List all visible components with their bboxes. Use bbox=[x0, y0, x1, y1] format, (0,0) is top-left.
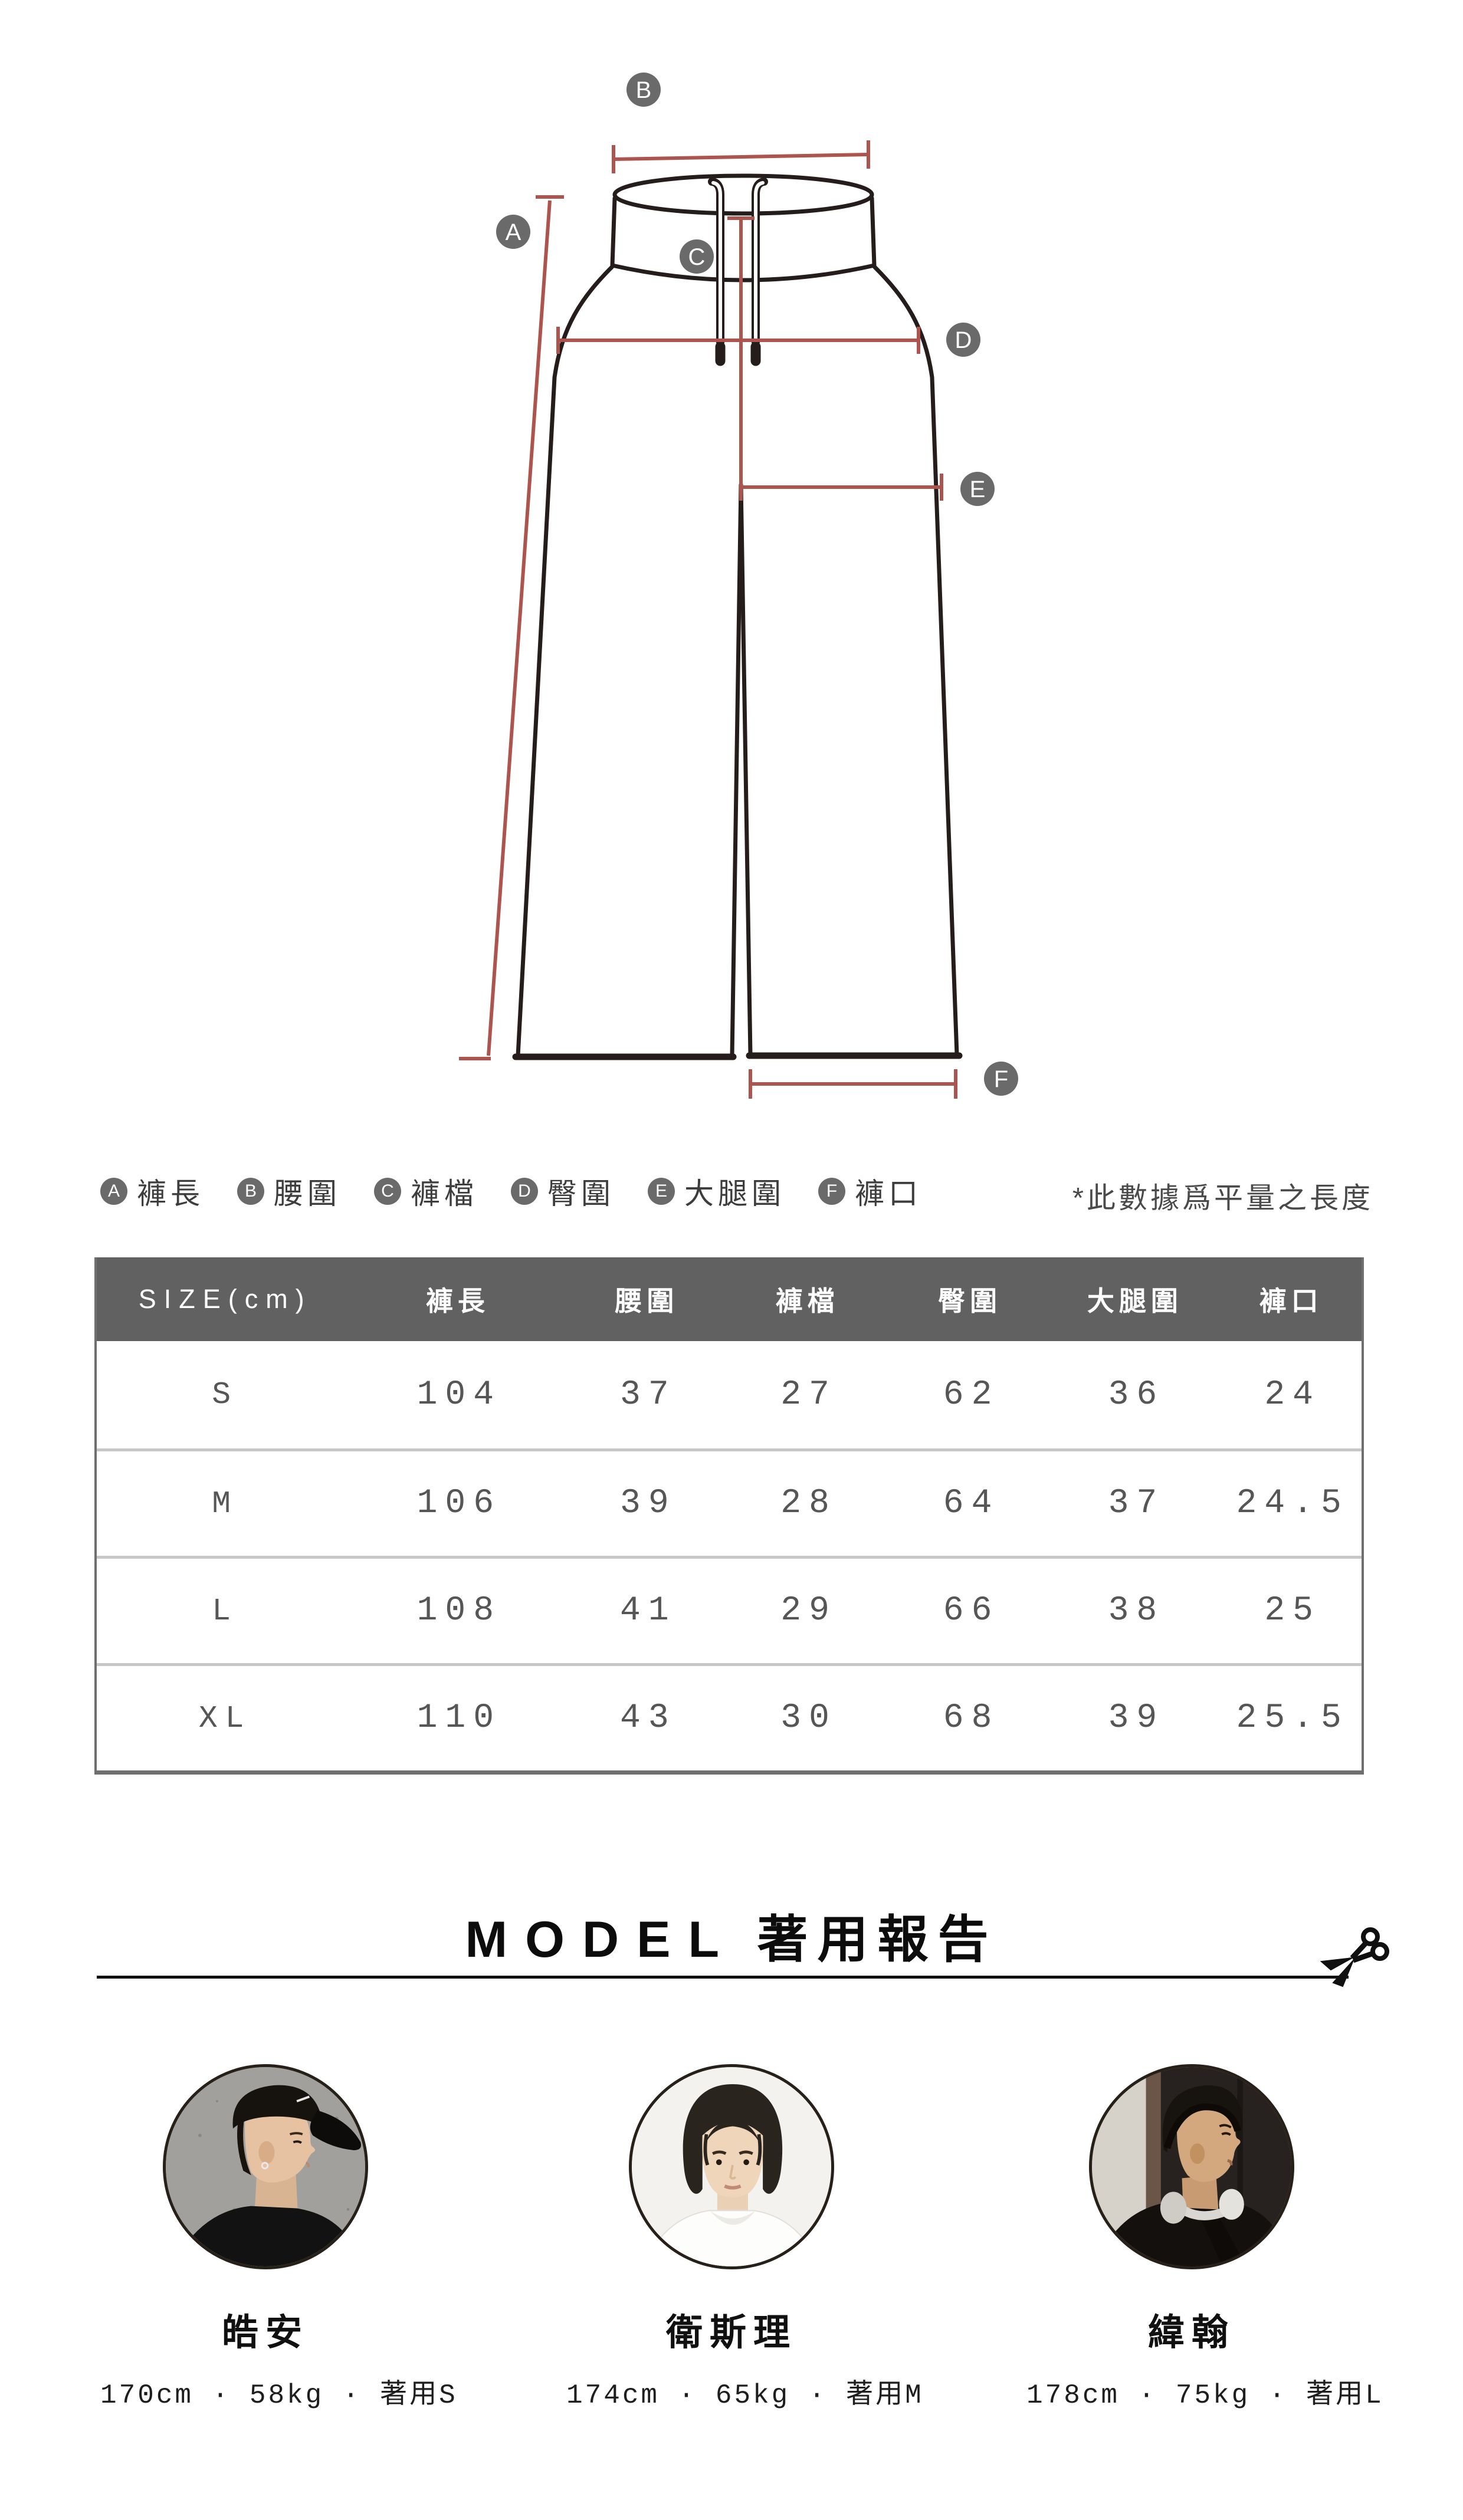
legend-label: 褲口 bbox=[855, 1170, 922, 1213]
value-rise: 29 bbox=[724, 1592, 885, 1630]
value-rise: 28 bbox=[724, 1484, 885, 1523]
legend-label: 大腿圍 bbox=[684, 1170, 785, 1213]
marker-f: F bbox=[984, 1062, 1018, 1096]
flat-measure-note: *此數據爲平量之長度 bbox=[1072, 1175, 1373, 1217]
header-waist: 腰圍 bbox=[565, 1280, 724, 1319]
model-name: 緯翰 bbox=[1026, 2302, 1357, 2355]
value-hip: 62 bbox=[886, 1376, 1049, 1414]
table-row-m: M 106 39 28 64 37 24.5 bbox=[97, 1448, 1362, 1556]
legend-circle-b: B bbox=[237, 1178, 264, 1205]
value-thigh: 38 bbox=[1049, 1592, 1216, 1630]
legend-item-c: C 褲檔 bbox=[374, 1170, 478, 1213]
header-hip: 臀圍 bbox=[886, 1280, 1049, 1319]
measurement-lines bbox=[459, 140, 956, 1099]
size-label: S bbox=[97, 1377, 346, 1412]
svg-text:A: A bbox=[506, 219, 521, 245]
value-length: 108 bbox=[346, 1592, 565, 1630]
value-hem: 25.5 bbox=[1216, 1699, 1362, 1737]
legend-item-d: D 臀圍 bbox=[511, 1170, 615, 1213]
measurement-legend: A 褲長 B 腰圍 C 褲檔 D 臀圍 E 大腿圍 F 褲口 bbox=[100, 1170, 955, 1213]
header-length: 褲長 bbox=[346, 1280, 565, 1319]
legend-circle-d: D bbox=[511, 1178, 538, 1205]
legend-label: 褲長 bbox=[137, 1170, 204, 1213]
legend-label: 臀圍 bbox=[547, 1170, 615, 1213]
legend-label: 褲檔 bbox=[411, 1170, 478, 1213]
value-thigh: 36 bbox=[1049, 1376, 1216, 1414]
value-waist: 43 bbox=[565, 1699, 724, 1737]
value-length: 104 bbox=[346, 1376, 565, 1414]
legend-circle-a: A bbox=[100, 1178, 127, 1205]
model-photo bbox=[1089, 2064, 1294, 2269]
svg-text:F: F bbox=[994, 1066, 1008, 1092]
size-label: M bbox=[97, 1486, 346, 1522]
pants-measurement-diagram: A B C D E F bbox=[0, 0, 1463, 1144]
legend-item-a: A 褲長 bbox=[100, 1170, 204, 1213]
model-info: 170cm · 58kg · 著用S bbox=[100, 2372, 431, 2411]
value-rise: 27 bbox=[724, 1376, 885, 1414]
title-model-en: MODEL bbox=[465, 1911, 737, 1968]
svg-text:B: B bbox=[636, 77, 652, 103]
model-name: 皓安 bbox=[100, 2302, 431, 2355]
legend-circle-f: F bbox=[818, 1178, 845, 1205]
legend-item-b: B 腰圍 bbox=[237, 1170, 341, 1213]
marker-b: B bbox=[626, 73, 661, 107]
header-hem: 褲口 bbox=[1216, 1280, 1362, 1319]
model-card: 緯翰 178cm · 75kg · 著用L bbox=[1026, 2064, 1357, 2411]
size-table: SIZE(cm) 褲長 腰圍 褲檔 臀圍 大腿圍 褲口 S 104 37 27 … bbox=[94, 1257, 1364, 1775]
svg-text:C: C bbox=[688, 244, 706, 270]
svg-text:E: E bbox=[970, 477, 986, 502]
model-card: 皓安 170cm · 58kg · 著用S bbox=[100, 2064, 431, 2411]
value-hip: 64 bbox=[886, 1484, 1049, 1523]
table-row-s: S 104 37 27 62 36 24 bbox=[97, 1341, 1362, 1448]
value-hem: 25 bbox=[1216, 1592, 1362, 1630]
legend-item-e: E 大腿圍 bbox=[648, 1170, 785, 1213]
model-photo bbox=[629, 2064, 834, 2269]
size-label: L bbox=[97, 1594, 346, 1629]
marker-c: C bbox=[680, 239, 714, 274]
scissors-icon bbox=[1320, 1924, 1391, 1995]
value-thigh: 37 bbox=[1049, 1484, 1216, 1523]
legend-item-f: F 褲口 bbox=[818, 1170, 922, 1213]
marker-a: A bbox=[496, 215, 530, 249]
svg-text:D: D bbox=[955, 327, 972, 353]
table-row-xl: XL 110 43 30 68 39 25.5 bbox=[97, 1663, 1362, 1770]
value-hem: 24.5 bbox=[1216, 1484, 1362, 1523]
model-name: 衛斯理 bbox=[566, 2302, 897, 2355]
value-hem: 24 bbox=[1216, 1376, 1362, 1414]
table-row-l: L 108 41 29 66 38 25 bbox=[97, 1556, 1362, 1663]
value-hip: 68 bbox=[886, 1699, 1049, 1737]
model-avatar-wavy-hair-man bbox=[632, 2067, 831, 2266]
marker-d: D bbox=[946, 323, 980, 357]
pants-outline bbox=[516, 176, 959, 1057]
value-waist: 37 bbox=[565, 1376, 724, 1414]
model-info: 178cm · 75kg · 著用L bbox=[1026, 2372, 1357, 2411]
value-hip: 66 bbox=[886, 1592, 1049, 1630]
size-label: XL bbox=[97, 1701, 346, 1736]
size-table-header: SIZE(cm) 褲長 腰圍 褲檔 臀圍 大腿圍 褲口 bbox=[97, 1257, 1362, 1341]
model-info: 174cm · 65kg · 著用M bbox=[566, 2372, 897, 2411]
legend-circle-c: C bbox=[374, 1178, 401, 1205]
model-avatar-beanie-man bbox=[1092, 2067, 1291, 2266]
model-report-title: MODEL 著用報告 bbox=[0, 1898, 1463, 1972]
header-rise: 褲檔 bbox=[724, 1280, 885, 1319]
title-report-zh: 著用報告 bbox=[757, 1911, 998, 1968]
model-avatar-capped-man bbox=[166, 2067, 365, 2266]
value-length: 106 bbox=[346, 1484, 565, 1523]
value-thigh: 39 bbox=[1049, 1699, 1216, 1737]
marker-e: E bbox=[960, 472, 995, 506]
header-size: SIZE(cm) bbox=[97, 1284, 346, 1315]
legend-circle-e: E bbox=[648, 1178, 675, 1205]
model-card: 衛斯理 174cm · 65kg · 著用M bbox=[566, 2064, 897, 2411]
value-rise: 30 bbox=[724, 1699, 885, 1737]
model-photo bbox=[163, 2064, 368, 2269]
value-waist: 41 bbox=[565, 1592, 724, 1630]
header-thigh: 大腿圍 bbox=[1049, 1280, 1216, 1319]
value-length: 110 bbox=[346, 1699, 565, 1737]
section-divider bbox=[97, 1976, 1349, 1979]
legend-label: 腰圍 bbox=[274, 1170, 341, 1213]
value-waist: 39 bbox=[565, 1484, 724, 1523]
